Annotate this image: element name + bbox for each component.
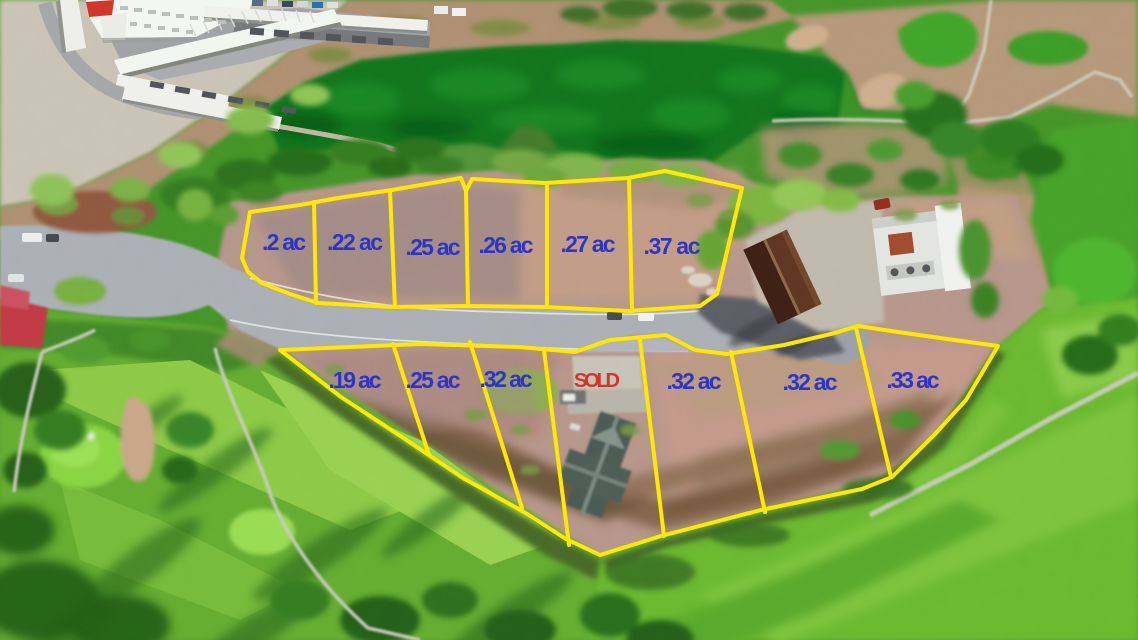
svg-text:.37 ac: .37 ac (644, 233, 701, 259)
svg-text:.33 ac: .33 ac (887, 367, 940, 393)
svg-text:.27 ac: .27 ac (561, 231, 616, 257)
svg-text:.25 ac: .25 ac (406, 367, 461, 393)
svg-text:.22 ac: .22 ac (327, 229, 383, 255)
svg-text:.32 ac: .32 ac (783, 369, 838, 395)
svg-text:SOLD: SOLD (574, 370, 620, 392)
svg-text:.19 ac: .19 ac (329, 367, 382, 393)
svg-text:.26 ac: .26 ac (479, 232, 534, 258)
svg-text:.25 ac: .25 ac (406, 234, 461, 260)
svg-text:.32 ac: .32 ac (480, 366, 533, 392)
svg-text:.2 ac: .2 ac (262, 229, 306, 255)
svg-text:.32 ac: .32 ac (667, 368, 722, 394)
